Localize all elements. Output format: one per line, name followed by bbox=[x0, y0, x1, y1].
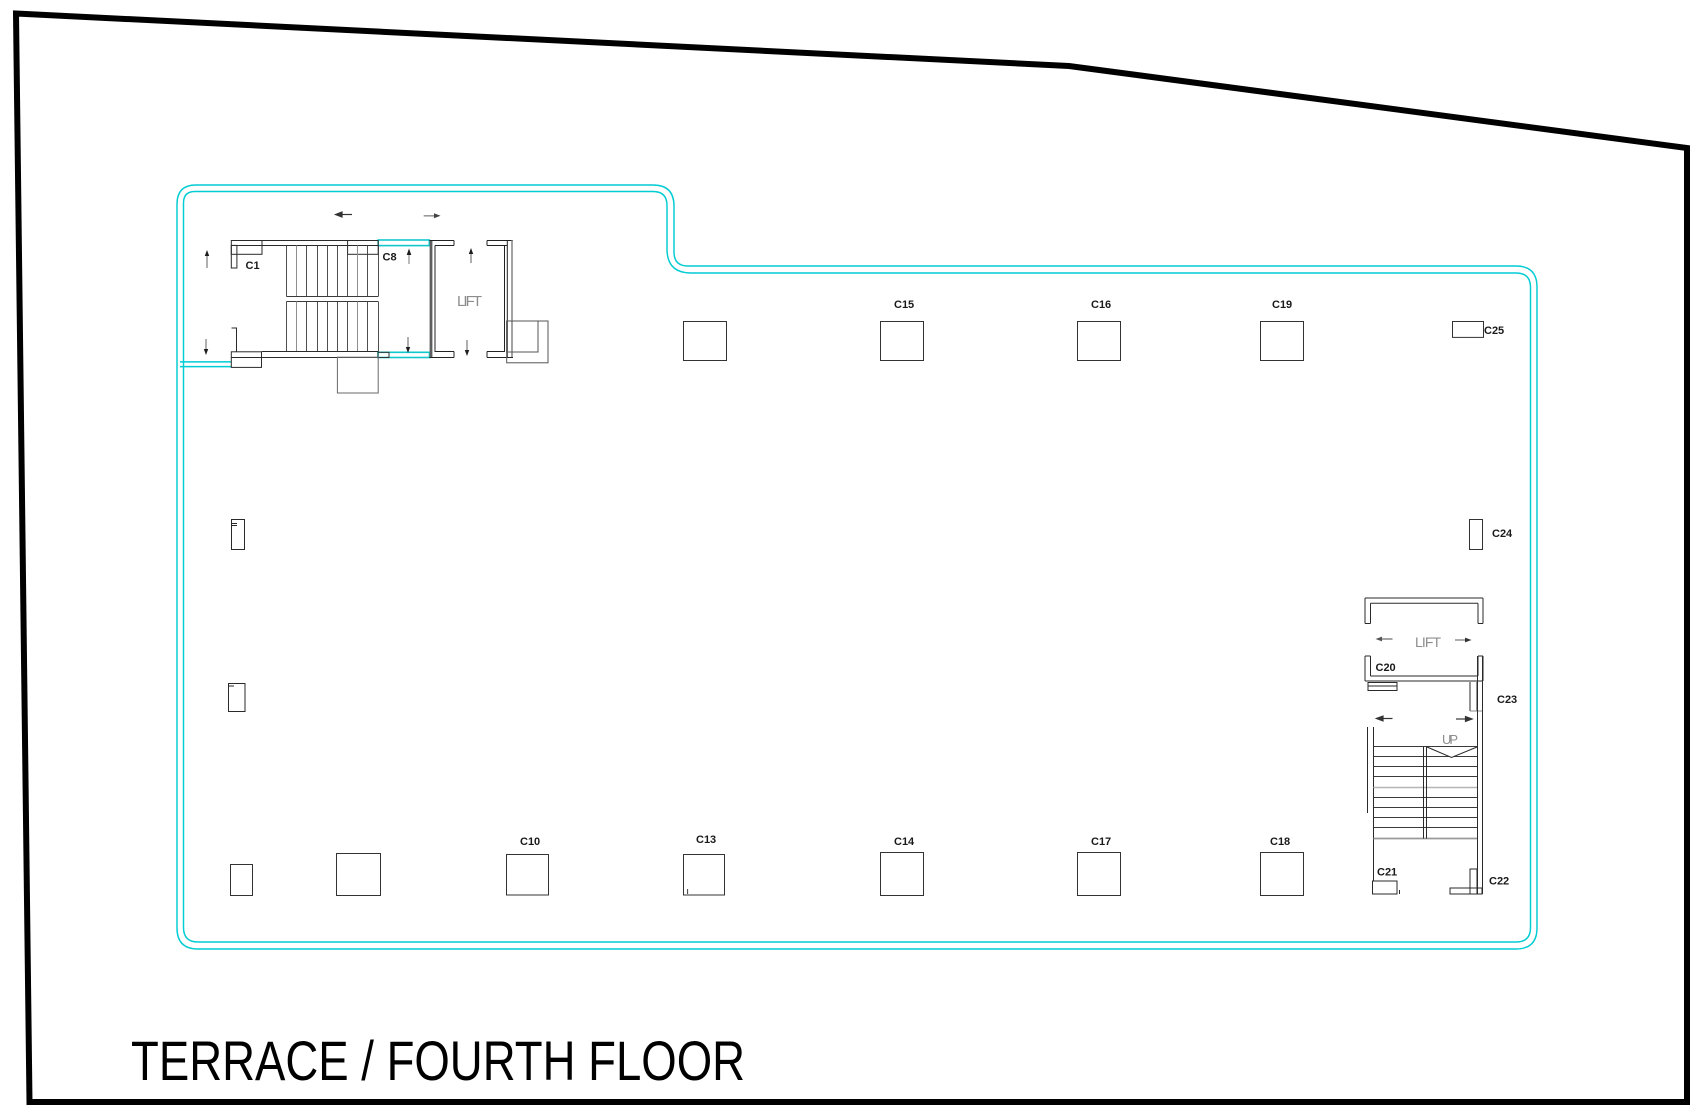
svg-text:C13: C13 bbox=[696, 834, 716, 846]
svg-text:C21: C21 bbox=[1377, 867, 1397, 879]
svg-text:C23: C23 bbox=[1497, 694, 1517, 706]
svg-text:C15: C15 bbox=[894, 299, 914, 311]
svg-text:C1: C1 bbox=[246, 260, 260, 272]
svg-text:C19: C19 bbox=[1272, 299, 1292, 311]
svg-text:C22: C22 bbox=[1489, 876, 1509, 888]
svg-text:C25: C25 bbox=[1484, 325, 1504, 337]
svg-text:C20: C20 bbox=[1376, 662, 1396, 674]
svg-text:UP: UP bbox=[1442, 732, 1458, 747]
svg-text:C24: C24 bbox=[1492, 528, 1513, 540]
svg-text:LIFT: LIFT bbox=[1415, 634, 1441, 650]
svg-text:TERRACE / FOURTH FLOOR: TERRACE / FOURTH FLOOR bbox=[131, 1029, 745, 1092]
svg-text:C14: C14 bbox=[894, 836, 915, 848]
svg-text:C17: C17 bbox=[1091, 836, 1111, 848]
svg-text:C10: C10 bbox=[520, 836, 540, 848]
svg-text:C8: C8 bbox=[383, 252, 397, 264]
svg-text:C16: C16 bbox=[1091, 299, 1111, 311]
svg-text:LIFT: LIFT bbox=[457, 293, 482, 310]
svg-text:C18: C18 bbox=[1270, 836, 1290, 848]
